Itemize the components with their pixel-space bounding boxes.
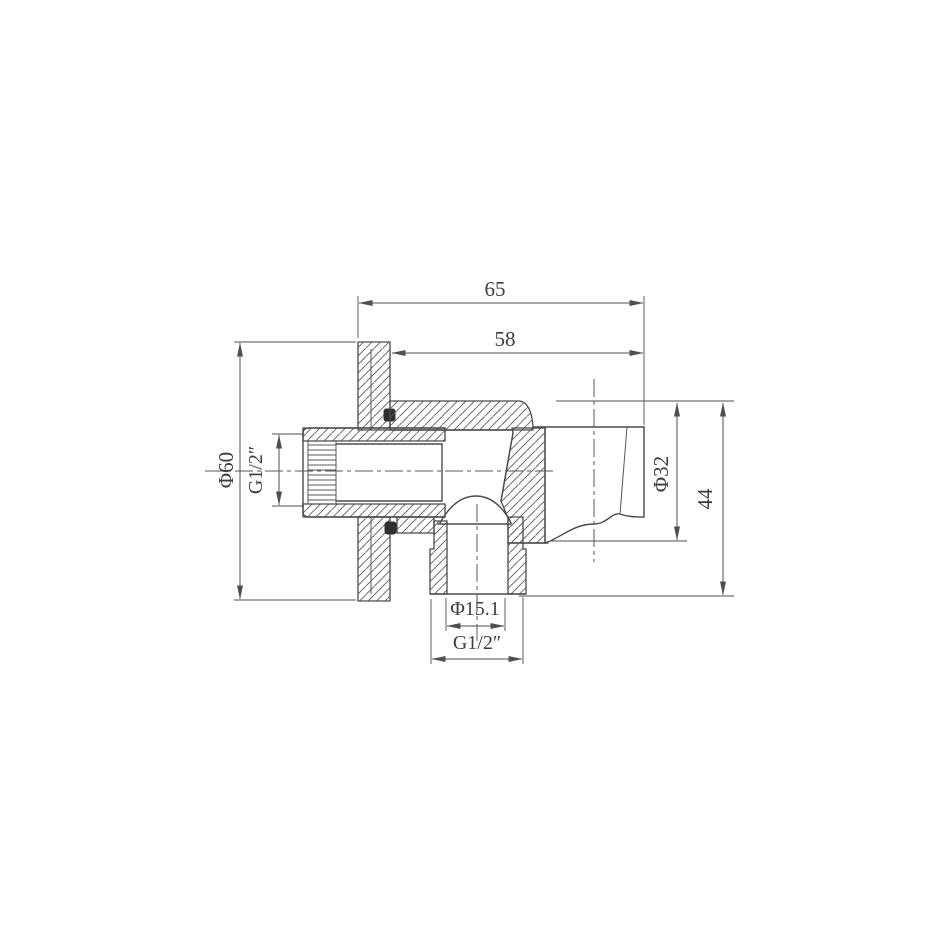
technical-drawing: 65 58 Φ60 G1/2″ Φ32 44 bbox=[0, 0, 950, 950]
shower-holder-cup bbox=[533, 427, 644, 543]
dimension-body-depth: 58 bbox=[392, 327, 643, 353]
dim-label-holder-diameter: Φ32 bbox=[649, 456, 673, 492]
dim-label-outlet-bore: Φ15.1 bbox=[450, 598, 500, 620]
outlet-dome bbox=[440, 496, 511, 523]
dim-label-holder-height: 44 bbox=[693, 488, 717, 510]
o-ring-seal-bottom bbox=[385, 522, 396, 534]
technical-drawing-canvas: 65 58 Φ60 G1/2″ Φ32 44 bbox=[0, 0, 950, 950]
inlet-connector bbox=[303, 428, 445, 517]
dim-label-inlet-thread: G1/2″ bbox=[245, 446, 267, 494]
dim-label-body-depth: 58 bbox=[495, 327, 516, 351]
dim-label-outlet-thread: G1/2″ bbox=[453, 632, 501, 654]
valve-body bbox=[390, 401, 548, 543]
dimension-outlet-bore: Φ15.1 bbox=[446, 598, 505, 631]
dim-label-flange-diameter: Φ60 bbox=[214, 452, 238, 488]
thread-ridges bbox=[308, 441, 336, 504]
dim-label-overall-width: 65 bbox=[485, 277, 506, 301]
outlet-port bbox=[430, 517, 526, 594]
dimension-inlet-thread: G1/2″ bbox=[245, 434, 304, 506]
dimension-holder-diameter: Φ32 bbox=[551, 403, 687, 541]
